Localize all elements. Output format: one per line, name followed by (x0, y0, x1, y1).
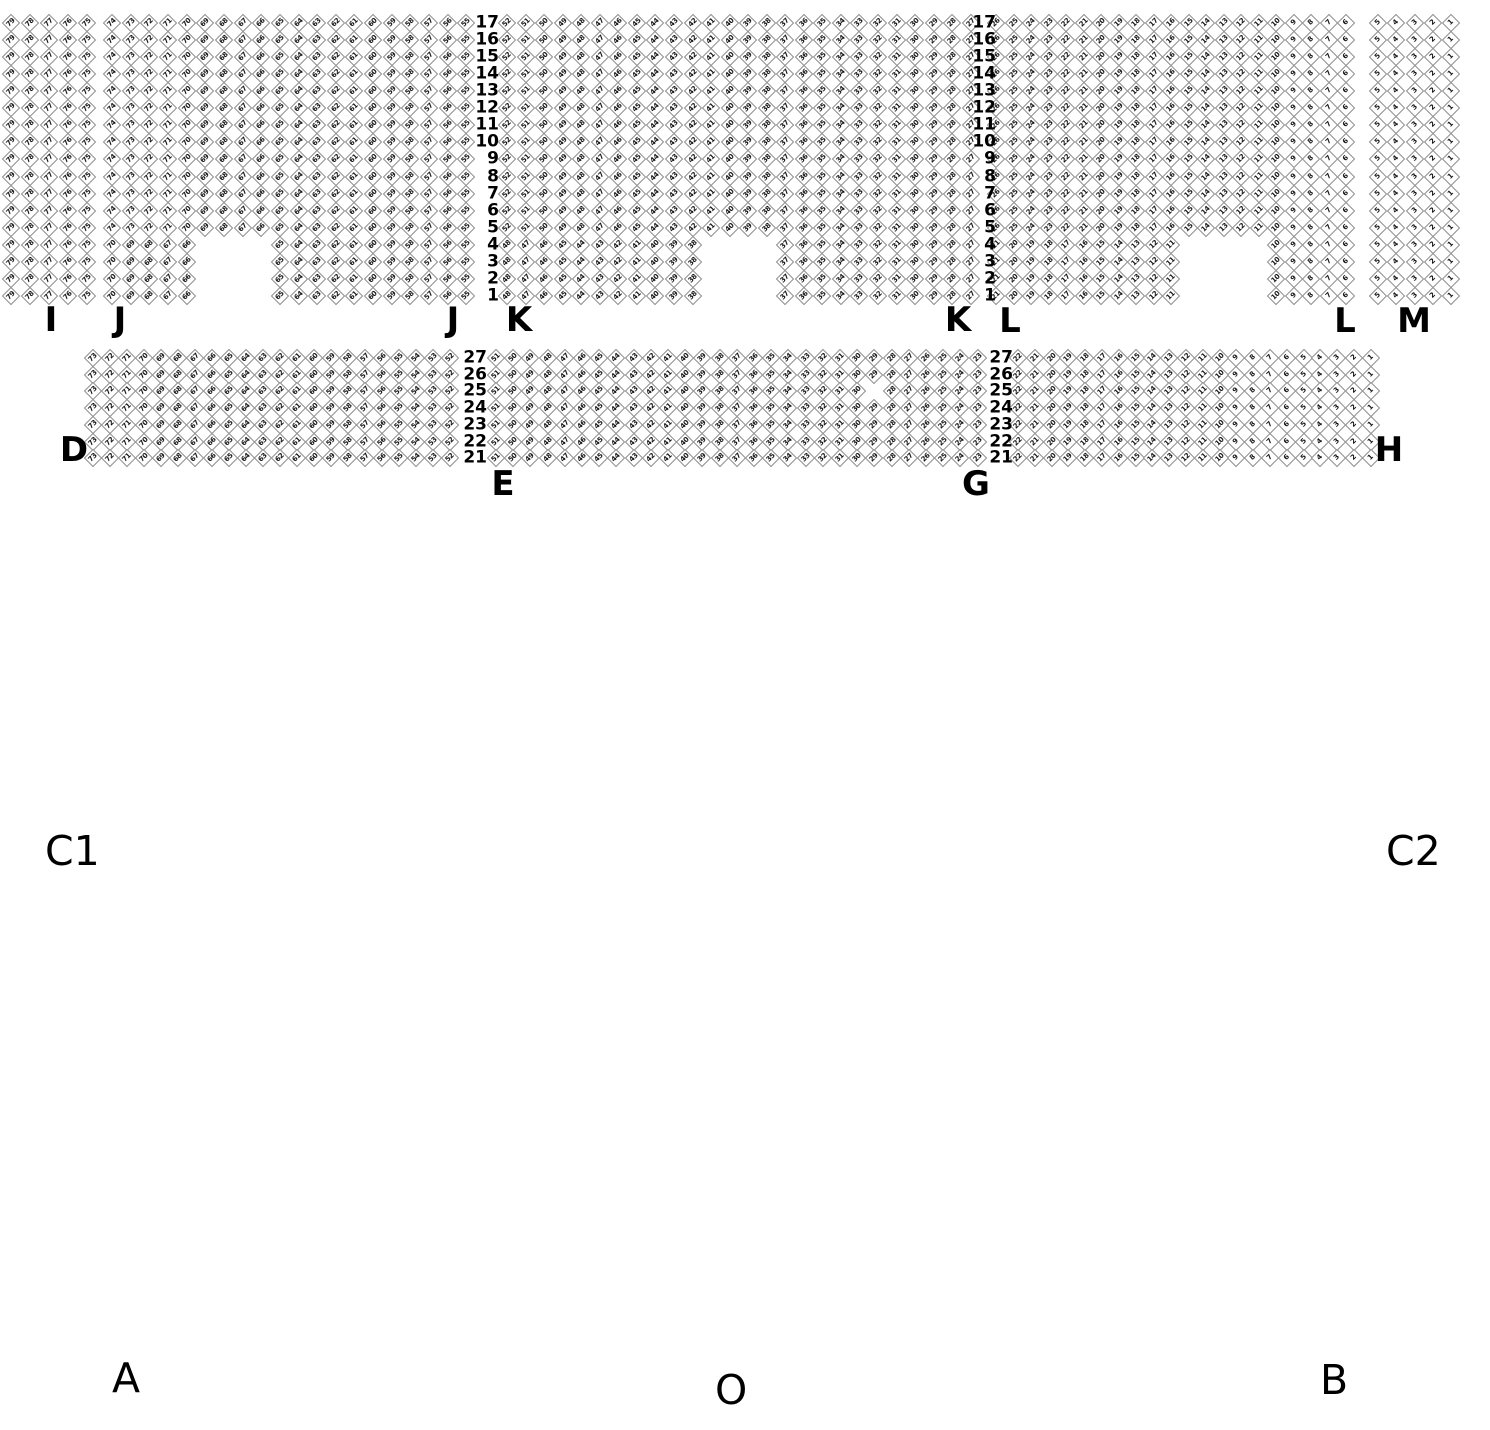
seat[interactable]: 24 (1022, 150, 1040, 168)
seat[interactable]: 11 (1194, 399, 1212, 417)
seat[interactable]: 75 (78, 167, 96, 185)
seat[interactable]: 25 (934, 349, 952, 367)
seat[interactable]: 49 (521, 449, 539, 467)
seat[interactable]: 45 (628, 31, 646, 49)
seat[interactable]: 18 (1127, 14, 1145, 32)
seat[interactable]: 17 (1093, 399, 1111, 417)
seat[interactable]: 38 (757, 150, 775, 168)
seat[interactable]: 65 (271, 14, 289, 32)
seat[interactable]: 46 (535, 253, 553, 271)
seat[interactable]: 59 (383, 219, 401, 237)
seat[interactable]: 60 (364, 65, 382, 83)
seat[interactable]: 32 (869, 14, 887, 32)
seat[interactable]: 57 (420, 236, 438, 254)
seat[interactable]: 1 (1442, 14, 1460, 32)
seat[interactable]: 39 (665, 270, 683, 288)
seat[interactable]: 12 (1232, 150, 1250, 168)
seat[interactable]: 68 (215, 82, 233, 100)
seat[interactable]: 42 (642, 399, 660, 417)
seat[interactable]: 62 (327, 167, 345, 185)
seat[interactable]: 65 (271, 65, 289, 83)
seat[interactable]: 14 (1109, 236, 1127, 254)
seat[interactable]: 70 (177, 201, 195, 219)
seat[interactable]: 24 (951, 399, 969, 417)
seat[interactable]: 60 (364, 270, 382, 288)
seat[interactable]: 6 (1337, 150, 1355, 168)
seat[interactable]: 35 (813, 270, 831, 288)
seat[interactable]: 67 (233, 150, 251, 168)
seat[interactable]: 66 (177, 253, 195, 271)
seat[interactable]: 16 (1110, 399, 1128, 417)
seat[interactable]: 52 (498, 48, 516, 66)
seat[interactable]: 20 (1092, 219, 1110, 237)
seat[interactable]: 63 (308, 133, 326, 151)
seat[interactable]: 69 (152, 449, 170, 467)
seat[interactable]: 19 (1022, 270, 1040, 288)
seat[interactable]: 6 (1337, 167, 1355, 185)
seat[interactable]: 58 (401, 150, 419, 168)
seat[interactable]: 42 (683, 201, 701, 219)
seat[interactable]: 57 (420, 82, 438, 100)
seat[interactable]: 17 (1057, 236, 1075, 254)
seat[interactable]: 62 (327, 65, 345, 83)
seat[interactable]: 59 (383, 31, 401, 49)
seat[interactable]: 28 (943, 150, 961, 168)
seat[interactable]: 46 (609, 48, 627, 66)
seat[interactable]: 2 (1424, 219, 1442, 237)
seat[interactable]: 56 (438, 184, 456, 202)
seat[interactable]: 19 (1109, 201, 1127, 219)
seat[interactable]: 52 (498, 219, 516, 237)
seat[interactable]: 20 (1092, 150, 1110, 168)
seat[interactable]: 44 (646, 167, 664, 185)
seat[interactable]: 50 (535, 201, 553, 219)
seat[interactable]: 40 (646, 287, 664, 305)
seat[interactable]: 71 (159, 99, 177, 117)
seat[interactable]: 43 (665, 65, 683, 83)
seat[interactable]: 15 (1179, 167, 1197, 185)
seat[interactable]: 40 (676, 349, 694, 367)
seat[interactable]: 43 (591, 236, 609, 254)
seat[interactable]: 36 (745, 399, 763, 417)
seat[interactable]: 67 (186, 449, 204, 467)
seat[interactable]: 18 (1076, 382, 1094, 400)
seat[interactable]: 39 (693, 416, 711, 434)
seat[interactable]: 55 (390, 416, 408, 434)
seat[interactable]: 8 (1244, 349, 1262, 367)
seat[interactable]: 35 (813, 253, 831, 271)
seat[interactable]: 67 (233, 201, 251, 219)
seat[interactable]: 37 (776, 82, 794, 100)
seat[interactable]: 75 (78, 82, 96, 100)
seat[interactable]: 32 (814, 399, 832, 417)
seat[interactable]: 33 (850, 167, 868, 185)
seat[interactable]: 78 (21, 184, 39, 202)
seat[interactable]: 9 (1227, 449, 1245, 467)
seat[interactable]: 48 (572, 201, 590, 219)
seat[interactable]: 73 (121, 14, 139, 32)
seat[interactable]: 4 (1387, 270, 1405, 288)
seat[interactable]: 31 (831, 416, 849, 434)
seat[interactable]: 28 (943, 270, 961, 288)
seat[interactable]: 61 (345, 14, 363, 32)
seat[interactable]: 4 (1311, 399, 1329, 417)
seat[interactable]: 75 (78, 14, 96, 32)
seat[interactable]: 6 (1278, 449, 1296, 467)
seat[interactable]: 39 (739, 150, 757, 168)
seat[interactable]: 52 (498, 116, 516, 134)
seat[interactable]: 52 (498, 65, 516, 83)
seat[interactable]: 6 (1337, 99, 1355, 117)
seat[interactable]: 72 (101, 349, 119, 367)
seat[interactable]: 43 (591, 270, 609, 288)
seat[interactable]: 45 (628, 150, 646, 168)
seat[interactable]: 29 (865, 432, 883, 450)
seat[interactable]: 36 (795, 65, 813, 83)
seat[interactable]: 58 (401, 219, 419, 237)
seat[interactable]: 57 (420, 253, 438, 271)
seat[interactable]: 35 (813, 287, 831, 305)
seat[interactable]: 35 (813, 150, 831, 168)
seat[interactable]: 69 (196, 150, 214, 168)
seat[interactable]: 38 (683, 287, 701, 305)
seat[interactable]: 30 (906, 287, 924, 305)
seat[interactable]: 72 (140, 65, 158, 83)
seat[interactable]: 40 (720, 184, 738, 202)
seat[interactable]: 78 (21, 150, 39, 168)
seat[interactable]: 24 (1022, 31, 1040, 49)
seat[interactable]: 38 (710, 449, 728, 467)
seat[interactable]: 63 (308, 48, 326, 66)
seat[interactable]: 20 (1092, 201, 1110, 219)
seat[interactable]: 51 (516, 150, 534, 168)
seat[interactable]: 10 (1267, 31, 1285, 49)
seat[interactable]: 18 (1039, 253, 1057, 271)
seat[interactable]: 7 (1319, 167, 1337, 185)
seat[interactable]: 79 (2, 184, 20, 202)
seat[interactable]: 12 (1232, 167, 1250, 185)
seat[interactable]: 50 (535, 82, 553, 100)
seat[interactable]: 8 (1302, 14, 1320, 32)
seat[interactable]: 33 (796, 416, 814, 434)
seat[interactable]: 38 (710, 416, 728, 434)
seat[interactable]: 69 (196, 65, 214, 83)
seat[interactable]: 18 (1127, 116, 1145, 134)
seat[interactable]: 74 (103, 14, 121, 32)
seat[interactable]: 51 (516, 219, 534, 237)
seat[interactable]: 68 (169, 416, 187, 434)
seat[interactable]: 20 (1092, 184, 1110, 202)
seat[interactable]: 30 (848, 399, 866, 417)
seat[interactable]: 3 (1405, 253, 1423, 271)
seat[interactable]: 25 (1004, 150, 1022, 168)
seat[interactable]: 72 (140, 31, 158, 49)
seat[interactable]: 70 (103, 236, 121, 254)
seat[interactable]: 41 (702, 150, 720, 168)
seat[interactable]: 33 (850, 48, 868, 66)
seat[interactable]: 24 (1022, 14, 1040, 32)
seat[interactable]: 16 (1074, 236, 1092, 254)
seat[interactable]: 26 (917, 399, 935, 417)
seat[interactable]: 62 (327, 184, 345, 202)
seat[interactable]: 14 (1197, 184, 1215, 202)
seat[interactable]: 49 (553, 14, 571, 32)
seat[interactable]: 3 (1405, 236, 1423, 254)
seat[interactable]: 32 (869, 48, 887, 66)
seat[interactable]: 37 (776, 150, 794, 168)
seat[interactable]: 3 (1328, 349, 1346, 367)
seat[interactable]: 17 (1144, 201, 1162, 219)
seat[interactable]: 8 (1302, 287, 1320, 305)
seat[interactable]: 48 (572, 14, 590, 32)
seat[interactable]: 69 (196, 201, 214, 219)
seat[interactable]: 57 (420, 133, 438, 151)
seat[interactable]: 66 (177, 270, 195, 288)
seat[interactable]: 58 (401, 14, 419, 32)
seat[interactable]: 65 (220, 449, 238, 467)
seat[interactable]: 7 (1319, 184, 1337, 202)
seat[interactable]: 30 (906, 48, 924, 66)
seat[interactable]: 1 (1442, 133, 1460, 151)
seat[interactable]: 36 (745, 349, 763, 367)
seat[interactable]: 31 (887, 150, 905, 168)
seat[interactable]: 36 (795, 270, 813, 288)
seat[interactable]: 62 (327, 270, 345, 288)
seat[interactable]: 5 (1369, 31, 1387, 49)
seat[interactable]: 34 (832, 236, 850, 254)
seat[interactable]: 34 (779, 382, 797, 400)
seat[interactable]: 12 (1232, 219, 1250, 237)
seat[interactable]: 44 (646, 133, 664, 151)
seat[interactable]: 67 (186, 349, 204, 367)
seat[interactable]: 45 (590, 382, 608, 400)
seat[interactable]: 30 (906, 82, 924, 100)
seat[interactable]: 78 (21, 253, 39, 271)
seat[interactable]: 78 (21, 65, 39, 83)
seat[interactable]: 39 (739, 82, 757, 100)
seat[interactable]: 62 (327, 287, 345, 305)
seat[interactable]: 47 (591, 31, 609, 49)
seat[interactable]: 71 (118, 349, 136, 367)
seat[interactable]: 52 (498, 184, 516, 202)
seat[interactable]: 6 (1337, 219, 1355, 237)
seat[interactable]: 44 (646, 201, 664, 219)
seat[interactable]: 34 (832, 150, 850, 168)
seat[interactable]: 79 (2, 14, 20, 32)
seat[interactable]: 29 (924, 150, 942, 168)
seat[interactable]: 30 (906, 116, 924, 134)
seat[interactable]: 79 (2, 219, 20, 237)
seat[interactable]: 31 (887, 201, 905, 219)
seat[interactable]: 48 (572, 167, 590, 185)
seat[interactable]: 12 (1232, 14, 1250, 32)
seat[interactable]: 50 (535, 14, 553, 32)
seat[interactable]: 72 (140, 167, 158, 185)
seat[interactable]: 1 (1442, 184, 1460, 202)
seat[interactable]: 44 (646, 48, 664, 66)
seat[interactable]: 45 (628, 65, 646, 83)
seat[interactable]: 4 (1387, 116, 1405, 134)
seat[interactable]: 40 (720, 219, 738, 237)
seat[interactable]: 77 (40, 14, 58, 32)
seat[interactable]: 41 (702, 14, 720, 32)
seat[interactable]: 57 (420, 219, 438, 237)
seat[interactable]: 18 (1127, 82, 1145, 100)
seat[interactable]: 5 (1369, 219, 1387, 237)
seat[interactable]: 16 (1162, 65, 1180, 83)
seat[interactable]: 20 (1092, 82, 1110, 100)
seat[interactable]: 49 (553, 184, 571, 202)
seat[interactable]: 13 (1160, 449, 1178, 467)
seat[interactable]: 46 (535, 287, 553, 305)
seat[interactable]: 64 (289, 167, 307, 185)
seat[interactable]: 72 (140, 48, 158, 66)
seat[interactable]: 28 (943, 14, 961, 32)
seat[interactable]: 35 (813, 14, 831, 32)
seat[interactable]: 69 (196, 82, 214, 100)
seat[interactable]: 76 (59, 150, 77, 168)
seat[interactable]: 74 (103, 167, 121, 185)
seat[interactable]: 16 (1110, 449, 1128, 467)
seat[interactable]: 10 (1267, 116, 1285, 134)
seat[interactable]: 6 (1337, 65, 1355, 83)
seat[interactable]: 43 (665, 201, 683, 219)
seat[interactable]: 32 (869, 167, 887, 185)
seat[interactable]: 39 (665, 287, 683, 305)
seat[interactable]: 60 (364, 219, 382, 237)
seat[interactable]: 61 (345, 184, 363, 202)
seat[interactable]: 37 (728, 349, 746, 367)
seat[interactable]: 70 (135, 349, 153, 367)
seat[interactable]: 70 (135, 416, 153, 434)
seat[interactable]: 37 (728, 399, 746, 417)
seat[interactable]: 59 (322, 399, 340, 417)
seat[interactable]: 41 (659, 416, 677, 434)
seat[interactable]: 51 (487, 349, 505, 367)
seat[interactable]: 12 (1177, 399, 1195, 417)
seat[interactable]: 14 (1109, 253, 1127, 271)
seat[interactable]: 10 (1267, 82, 1285, 100)
seat[interactable]: 19 (1059, 449, 1077, 467)
seat[interactable]: 19 (1109, 219, 1127, 237)
seat[interactable]: 58 (339, 399, 357, 417)
seat[interactable]: 69 (196, 48, 214, 66)
seat[interactable]: 50 (535, 48, 553, 66)
seat[interactable]: 30 (906, 150, 924, 168)
seat[interactable]: 28 (943, 65, 961, 83)
seat[interactable]: 37 (776, 287, 794, 305)
seat[interactable]: 42 (609, 236, 627, 254)
seat[interactable]: 10 (1267, 150, 1285, 168)
seat[interactable]: 5 (1369, 82, 1387, 100)
seat[interactable]: 74 (103, 65, 121, 83)
seat[interactable]: 66 (252, 99, 270, 117)
seat[interactable]: 14 (1109, 287, 1127, 305)
seat[interactable]: 68 (169, 399, 187, 417)
seat[interactable]: 60 (364, 116, 382, 134)
seat[interactable]: 40 (720, 150, 738, 168)
seat[interactable]: 76 (59, 287, 77, 305)
seat[interactable]: 69 (196, 133, 214, 151)
seat[interactable]: 37 (776, 65, 794, 83)
seat[interactable]: 56 (438, 167, 456, 185)
seat[interactable]: 2 (1424, 14, 1442, 32)
seat[interactable]: 73 (121, 219, 139, 237)
seat[interactable]: 47 (591, 219, 609, 237)
seat[interactable]: 10 (1267, 270, 1285, 288)
seat[interactable]: 75 (78, 236, 96, 254)
seat[interactable]: 19 (1109, 184, 1127, 202)
seat[interactable]: 68 (140, 236, 158, 254)
seat[interactable]: 4 (1387, 14, 1405, 32)
seat[interactable]: 75 (78, 270, 96, 288)
seat[interactable]: 15 (1179, 219, 1197, 237)
seat[interactable]: 39 (693, 349, 711, 367)
seat[interactable]: 44 (646, 82, 664, 100)
seat[interactable]: 28 (943, 167, 961, 185)
seat[interactable]: 16 (1162, 201, 1180, 219)
seat[interactable]: 75 (78, 116, 96, 134)
seat[interactable]: 68 (215, 65, 233, 83)
seat[interactable]: 10 (1267, 219, 1285, 237)
seat[interactable]: 19 (1059, 399, 1077, 417)
seat[interactable]: 63 (308, 270, 326, 288)
seat[interactable]: 58 (401, 133, 419, 151)
seat[interactable]: 20 (1092, 65, 1110, 83)
seat[interactable]: 71 (118, 416, 136, 434)
seat[interactable]: 55 (390, 399, 408, 417)
seat[interactable]: 8 (1302, 31, 1320, 49)
seat[interactable]: 54 (407, 416, 425, 434)
seat[interactable]: 66 (203, 416, 221, 434)
seat[interactable]: 63 (254, 449, 272, 467)
seat[interactable]: 46 (573, 399, 591, 417)
seat[interactable]: 62 (271, 349, 289, 367)
seat[interactable]: 56 (438, 253, 456, 271)
seat[interactable]: 62 (271, 449, 289, 467)
seat[interactable]: 1 (1442, 150, 1460, 168)
seat[interactable]: 66 (252, 133, 270, 151)
seat[interactable]: 2 (1424, 270, 1442, 288)
seat[interactable]: 8 (1302, 253, 1320, 271)
seat[interactable]: 2 (1424, 65, 1442, 83)
seat[interactable]: 31 (887, 287, 905, 305)
seat[interactable]: 9 (1284, 287, 1302, 305)
seat[interactable]: 11 (1249, 150, 1267, 168)
seat[interactable]: 65 (271, 48, 289, 66)
seat[interactable]: 54 (407, 399, 425, 417)
seat[interactable]: 49 (553, 167, 571, 185)
seat[interactable]: 42 (609, 270, 627, 288)
seat[interactable]: 17 (1144, 184, 1162, 202)
seat[interactable]: 46 (609, 133, 627, 151)
seat[interactable]: 24 (1022, 219, 1040, 237)
seat[interactable]: 48 (572, 99, 590, 117)
seat[interactable]: 44 (607, 365, 625, 383)
seat[interactable]: 57 (420, 270, 438, 288)
seat[interactable]: 14 (1197, 219, 1215, 237)
seat[interactable]: 40 (646, 236, 664, 254)
seat[interactable]: 71 (159, 82, 177, 100)
seat[interactable]: 72 (140, 150, 158, 168)
seat[interactable]: 18 (1076, 349, 1094, 367)
seat[interactable]: 40 (720, 167, 738, 185)
seat[interactable]: 35 (813, 48, 831, 66)
seat[interactable]: 30 (906, 270, 924, 288)
seat[interactable]: 11 (1249, 184, 1267, 202)
seat[interactable]: 28 (882, 449, 900, 467)
seat[interactable]: 35 (813, 65, 831, 83)
